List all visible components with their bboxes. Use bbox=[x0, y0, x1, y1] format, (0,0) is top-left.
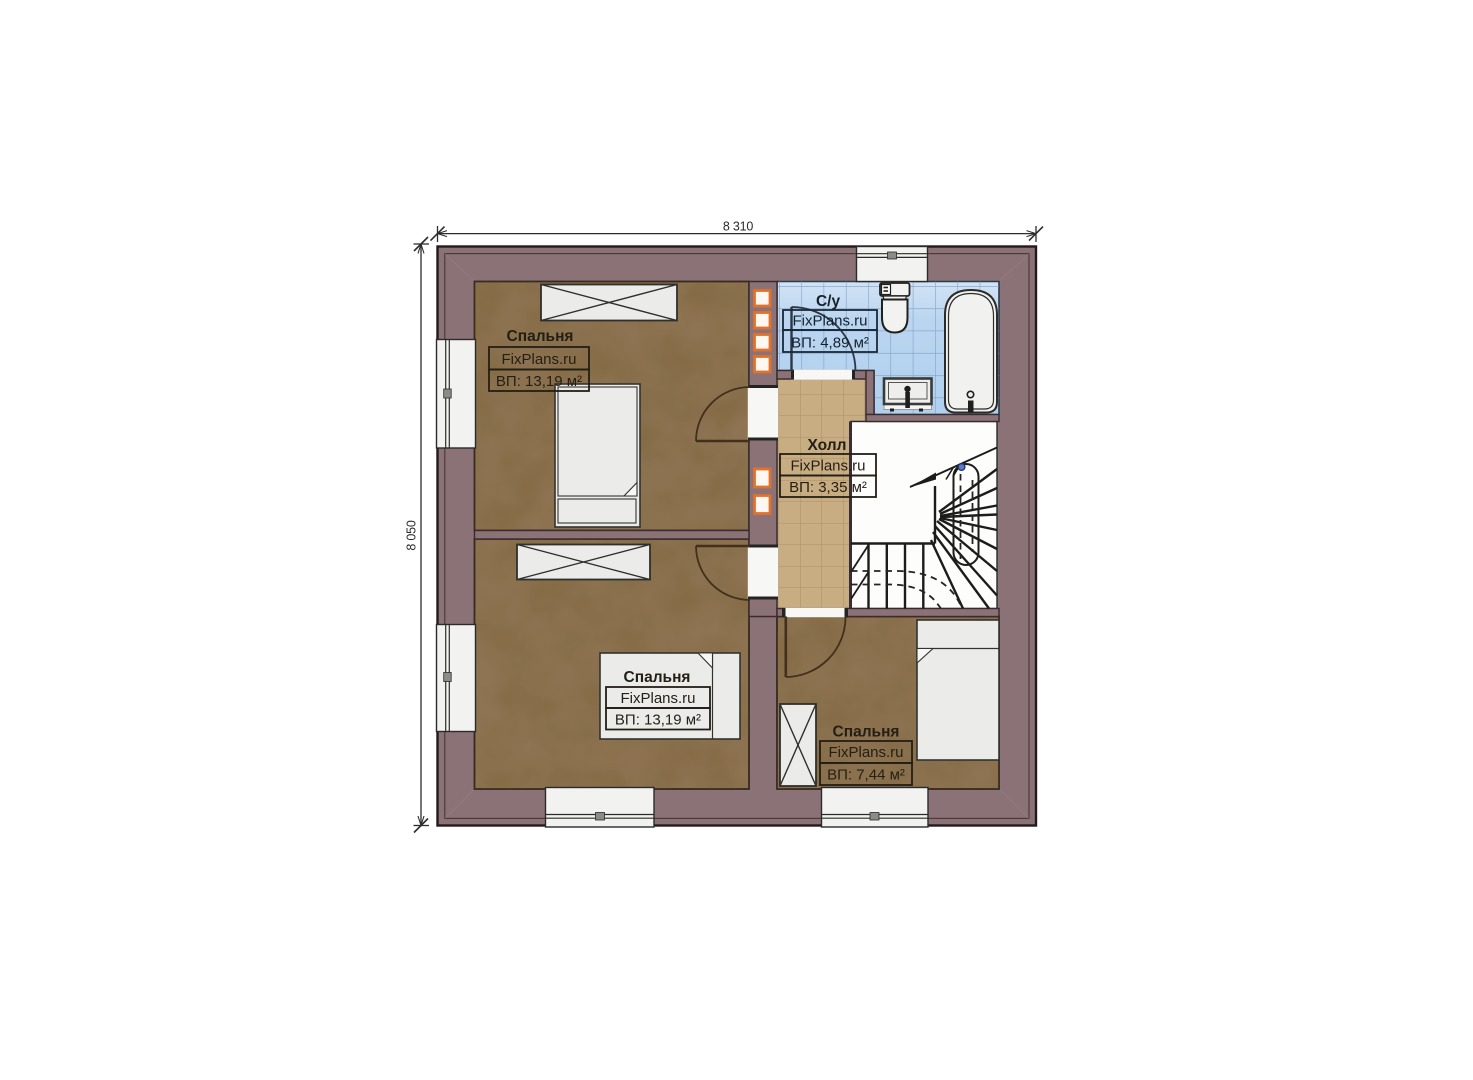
svg-text:Спальня: Спальня bbox=[624, 669, 691, 686]
svg-text:FixPlans.ru: FixPlans.ru bbox=[620, 690, 695, 707]
svg-text:ВП: 13,19 м²: ВП: 13,19 м² bbox=[615, 712, 701, 729]
svg-text:Холл: Холл bbox=[808, 437, 847, 454]
svg-text:8 310: 8 310 bbox=[723, 220, 754, 234]
svg-text:FixPlans.ru: FixPlans.ru bbox=[501, 351, 576, 368]
svg-text:Спальня: Спальня bbox=[507, 328, 574, 345]
svg-text:ВП: 13,19 м²: ВП: 13,19 м² bbox=[496, 373, 582, 390]
svg-text:ВП: 3,35 м²: ВП: 3,35 м² bbox=[789, 479, 867, 496]
svg-text:С/у: С/у bbox=[816, 293, 841, 310]
svg-text:FixPlans.ru: FixPlans.ru bbox=[790, 458, 865, 475]
svg-text:8 050: 8 050 bbox=[405, 520, 419, 551]
svg-text:ВП: 4,89 м²: ВП: 4,89 м² bbox=[791, 335, 869, 352]
svg-text:FixPlans.ru: FixPlans.ru bbox=[828, 744, 903, 761]
svg-text:FixPlans.ru: FixPlans.ru bbox=[792, 313, 867, 330]
svg-text:ВП: 7,44 м²: ВП: 7,44 м² bbox=[827, 767, 905, 784]
svg-text:Спальня: Спальня bbox=[833, 724, 900, 741]
